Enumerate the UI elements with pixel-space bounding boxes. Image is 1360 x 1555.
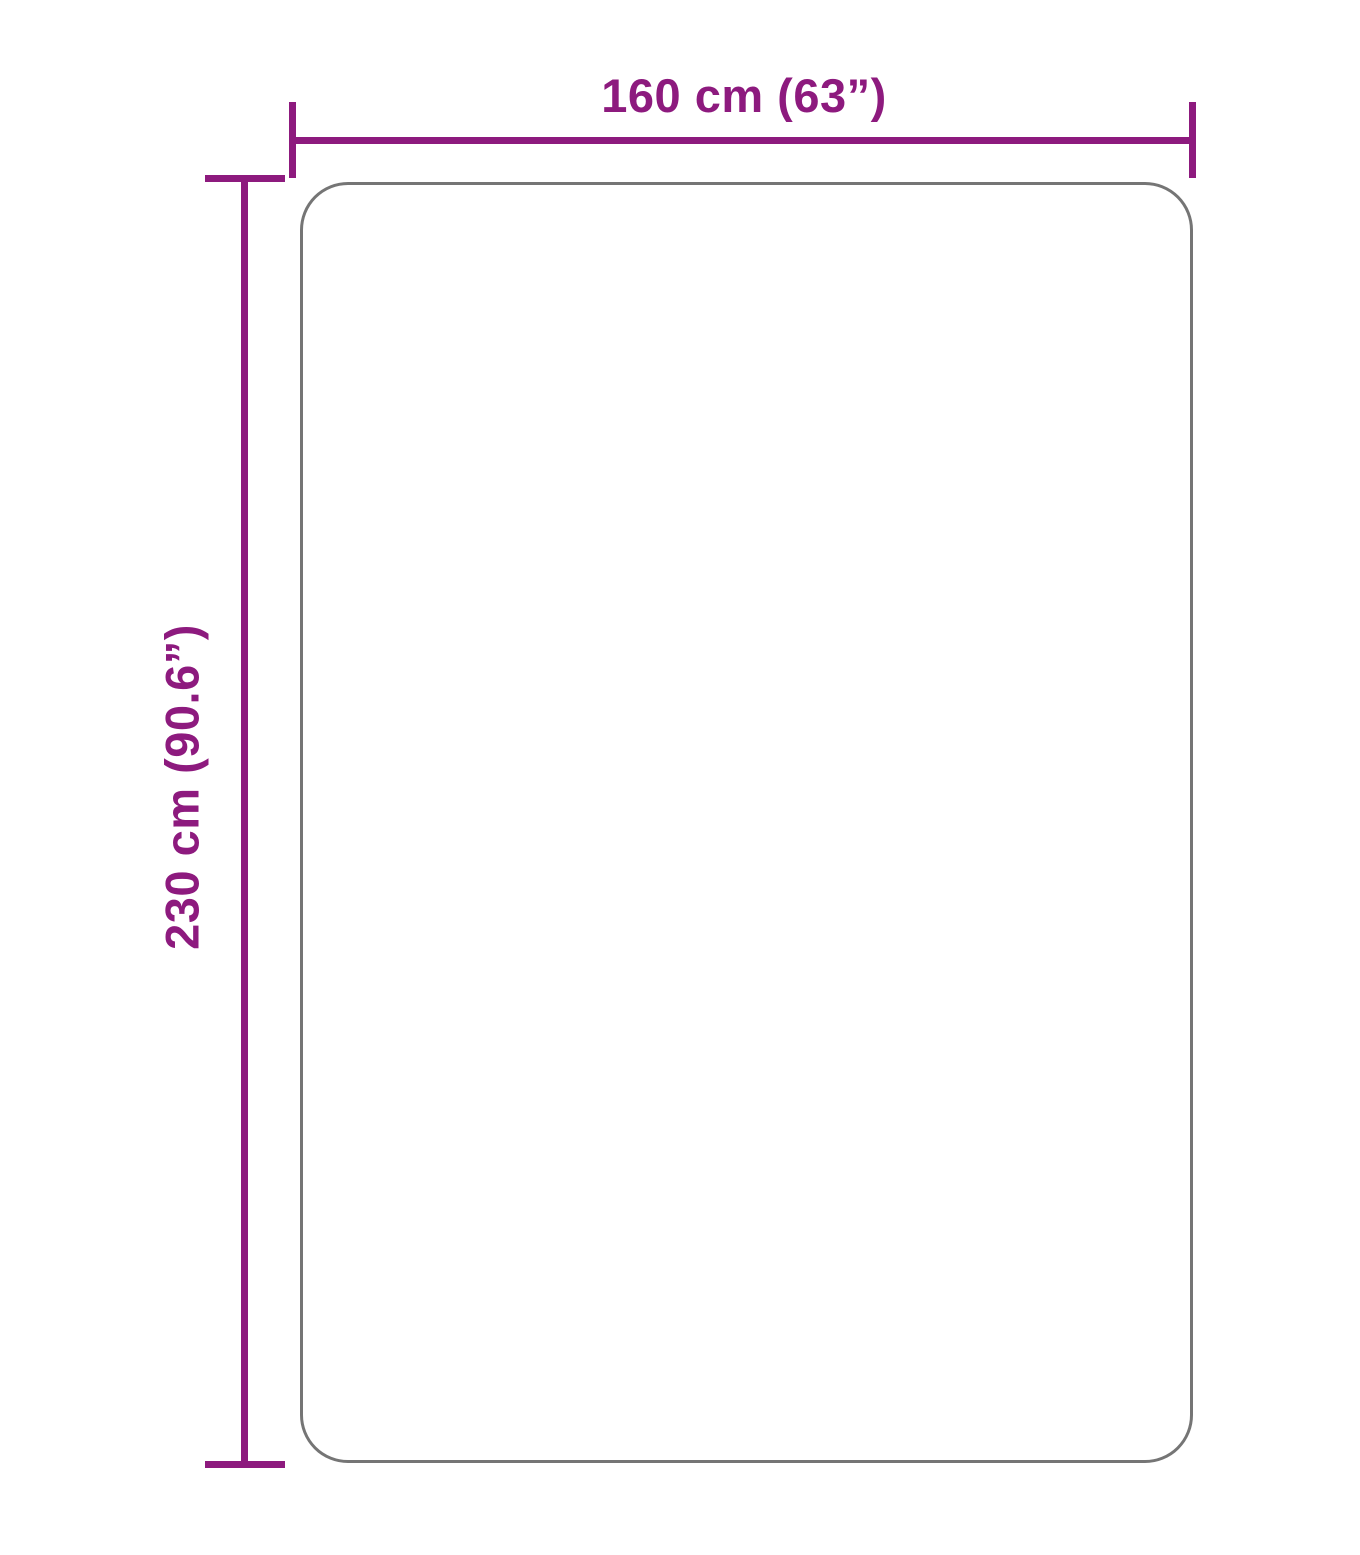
width-dimension-label: 160 cm (63”)	[292, 68, 1196, 123]
product-outline	[300, 182, 1193, 1463]
width-dimension-line	[292, 137, 1196, 144]
dimension-diagram: 160 cm (63”) 230 cm (90.6”)	[0, 0, 1360, 1555]
height-dimension-line	[241, 178, 248, 1468]
height-dimension-cap-top	[205, 175, 285, 182]
height-dimension-label: 230 cm (90.6”)	[155, 624, 210, 950]
height-dimension-cap-bottom	[205, 1461, 285, 1468]
